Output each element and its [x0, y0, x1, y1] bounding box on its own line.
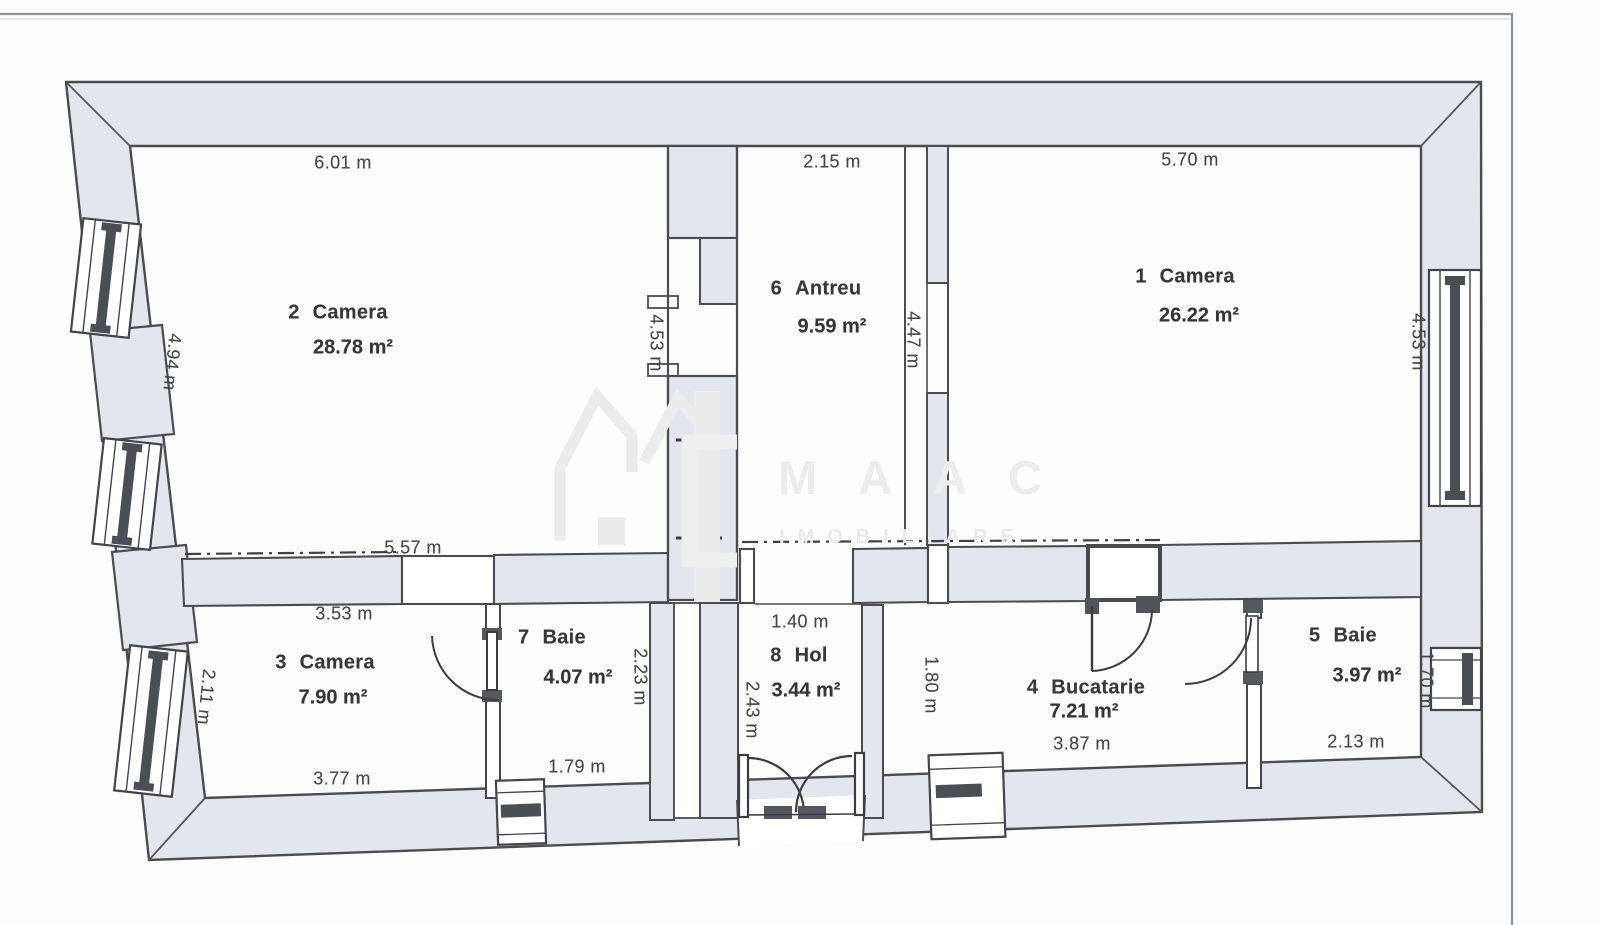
- window-room1: [1429, 270, 1481, 506]
- door-jamb: [1243, 671, 1263, 684]
- room-7-number: 7: [518, 627, 529, 649]
- room-1-name: Camera: [1160, 266, 1235, 288]
- room-8-area: 3.44 m²: [772, 680, 841, 703]
- dim-room3-bottom: 3.77 m: [313, 769, 370, 790]
- room-6-number: 6: [771, 278, 782, 300]
- dim-room2-bottom: 5.57 m: [384, 538, 441, 559]
- dim-room1-right: 4.53 m: [1408, 313, 1429, 370]
- room-2-label: 2Camera: [288, 302, 388, 325]
- watermark-brand: MAAC: [778, 450, 1083, 505]
- entrance-threshold: [764, 806, 792, 819]
- plumbing-shaft: [674, 603, 700, 818]
- dim-antreu-top: 2.15 m: [803, 152, 860, 173]
- bucatarie-top-door: [1085, 546, 1160, 671]
- window-baie7-bottom: [496, 779, 546, 845]
- baie5-door-leaf: [1246, 616, 1258, 672]
- room-7-label: 7Baie: [518, 627, 586, 650]
- dim-baie5-bottom: 2.13 m: [1327, 732, 1384, 753]
- dim-hol-top: 1.40 m: [771, 612, 828, 633]
- entrance-right-leaf: [855, 753, 864, 815]
- entrance-threshold: [798, 806, 826, 819]
- baie5-door-swing: [1185, 618, 1251, 684]
- room-8-label: 8Hol: [770, 645, 828, 668]
- baie7-door-leaf: [487, 632, 497, 690]
- room-6-area: 9.59 m²: [798, 316, 867, 339]
- window-room2-lower: [92, 438, 161, 550]
- room-4-area: 7.21 m²: [1050, 701, 1119, 724]
- room-6-label: 6Antreu: [771, 278, 862, 301]
- room-5-area: 3.97 m²: [1333, 665, 1402, 688]
- room-2-number: 2: [288, 302, 299, 324]
- room-1-label: 1Camera: [1135, 266, 1235, 289]
- dim-bucatarie-left: 1.80 m: [921, 656, 942, 713]
- room-3-label: 3Camera: [275, 652, 375, 675]
- wall-bucatarie-baie5: [1185, 600, 1263, 788]
- logo-dot: [598, 517, 625, 545]
- wall-room3-baie7: [432, 604, 502, 798]
- window-baie5: [1431, 648, 1481, 710]
- room-8-number: 8: [770, 645, 781, 667]
- room-3-area: 7.90 m²: [299, 687, 368, 710]
- flue-ledge-upper: [648, 296, 678, 308]
- wall-corner-seams: [66, 82, 1482, 860]
- corridor-slot-left: [740, 549, 754, 603]
- corridor-slot-right: [928, 545, 948, 603]
- window-room2-upper: [71, 218, 141, 338]
- dim-antreu-right: 4.47 m: [903, 311, 924, 368]
- window-bucatarie-bottom: [929, 753, 1006, 840]
- logo-bar: [694, 391, 720, 601]
- room-3-name: Camera: [300, 652, 375, 674]
- room-1-number: 1: [1135, 266, 1146, 288]
- dim-baie5-right: 1.70 m: [1416, 651, 1437, 708]
- dim-room2-top: 6.01 m: [314, 153, 371, 174]
- room-7-area: 4.07 m²: [544, 667, 613, 690]
- corridor-wall: [182, 541, 1421, 606]
- room-1-area: 26.22 m²: [1159, 305, 1239, 328]
- room-6-name: Antreu: [795, 278, 861, 300]
- room-7-name: Baie: [542, 627, 585, 649]
- dim-bucatarie-bottom: 3.87 m: [1053, 734, 1110, 755]
- watermark-tagline: IMOBILIARE: [779, 526, 1027, 549]
- dim-room1-top: 5.70 m: [1161, 150, 1218, 171]
- window-glazing: [1450, 282, 1460, 494]
- window-glazing: [501, 803, 541, 817]
- dim-hol-left: 2.43 m: [742, 681, 763, 738]
- entrance-double-door: [737, 753, 865, 846]
- door-jamb: [1243, 600, 1263, 613]
- room-8-name: Hol: [795, 645, 828, 667]
- room-5-label: 5Baie: [1309, 625, 1377, 648]
- window-glazing: [1462, 653, 1473, 705]
- window-glazing: [936, 783, 982, 798]
- entrance-left-leaf: [739, 755, 748, 817]
- room-2-area: 28.78 m²: [313, 337, 393, 360]
- floorplan-page: MAAC IMOBILIARE 1Camera 26.22 m² 2Camera…: [0, 0, 1600, 925]
- room-5-name: Baie: [1333, 625, 1376, 647]
- room-3-number: 3: [275, 652, 286, 674]
- room-4-name: Bucatarie: [1051, 677, 1145, 699]
- entrance-recess: [737, 795, 865, 846]
- room-5-number: 5: [1309, 625, 1320, 647]
- dim-baie7-right: 2.23 m: [630, 648, 651, 705]
- door-swing: [1092, 610, 1152, 671]
- wall-baie7-hol: [650, 603, 738, 820]
- room-2-name: Camera: [313, 302, 388, 324]
- dim-baie7-bottom: 1.79 m: [548, 757, 605, 778]
- corridor-wall-opening: [402, 556, 494, 604]
- exterior-walls: [66, 82, 1482, 860]
- dim-room3-top: 3.53 m: [315, 604, 372, 625]
- room-4-number: 4: [1027, 677, 1038, 699]
- room-4-label: 4Bucatarie: [1027, 677, 1145, 700]
- wall-hol-bucatarie: [862, 605, 883, 818]
- dim-antreu-left: 4.53 m: [646, 314, 667, 371]
